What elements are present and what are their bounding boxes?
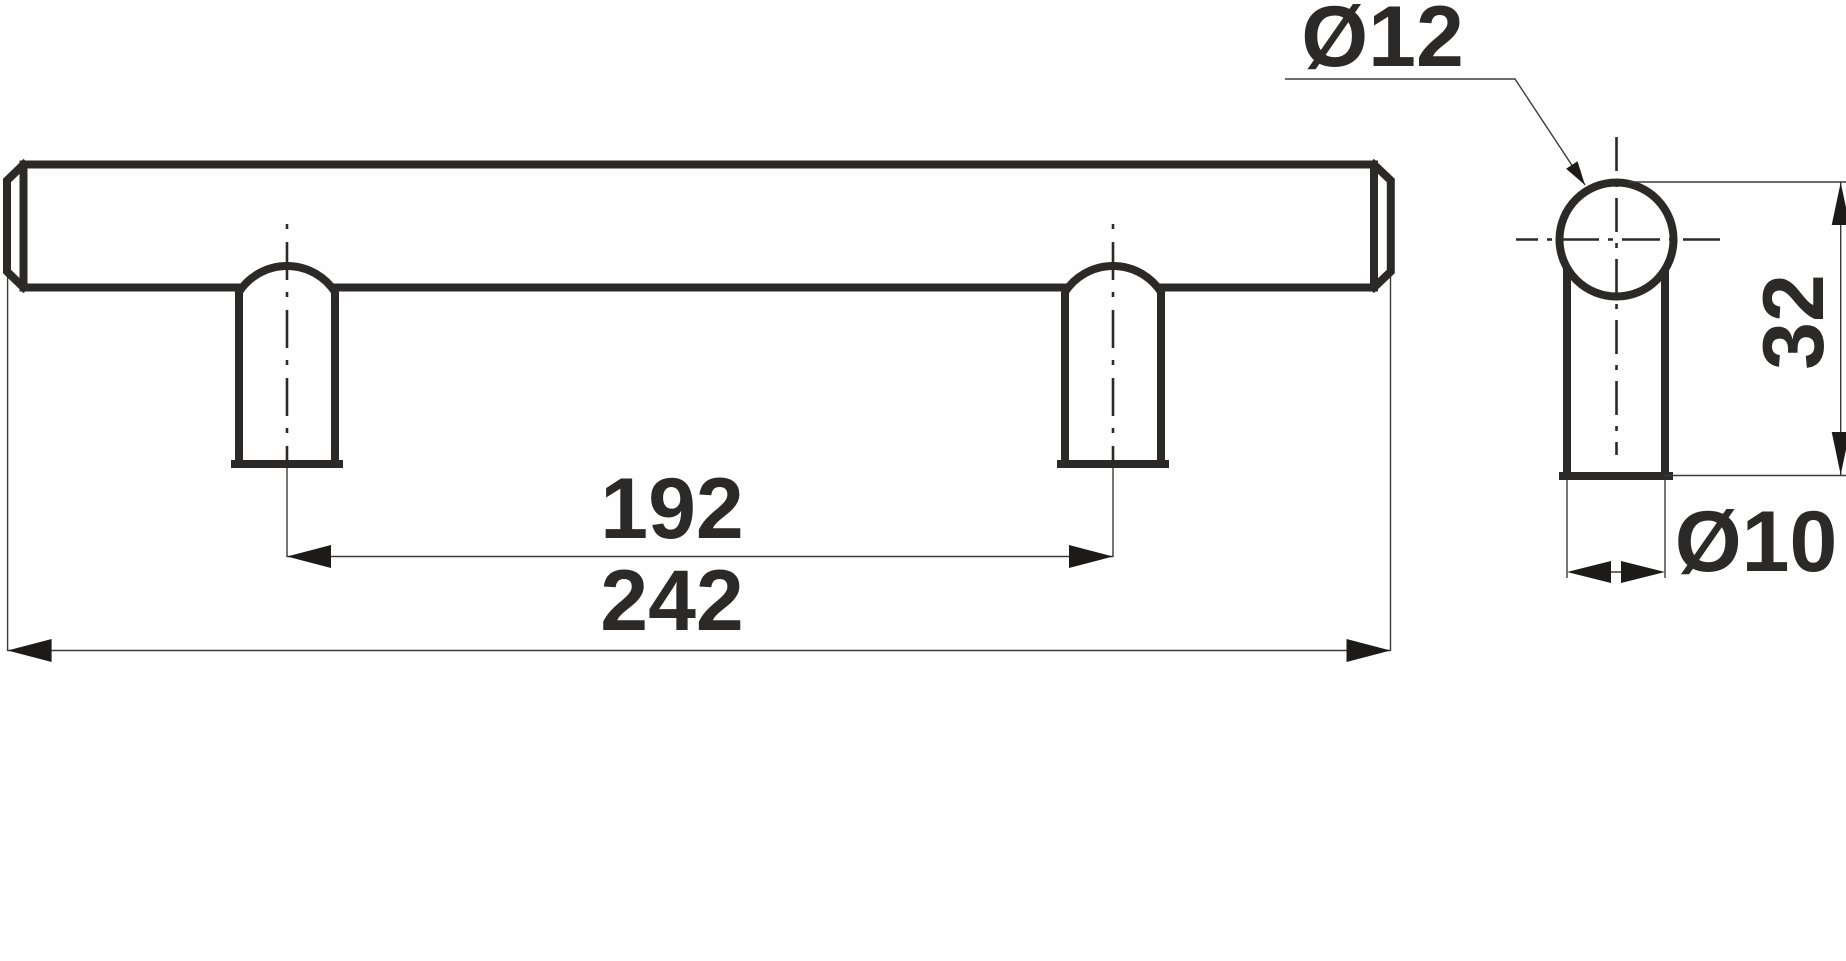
- svg-text:32: 32: [1746, 274, 1842, 370]
- svg-text:242: 242: [600, 553, 744, 649]
- svg-text:Ø10: Ø10: [1675, 494, 1838, 590]
- svg-text:Ø12: Ø12: [1301, 0, 1464, 85]
- svg-text:192: 192: [600, 461, 744, 557]
